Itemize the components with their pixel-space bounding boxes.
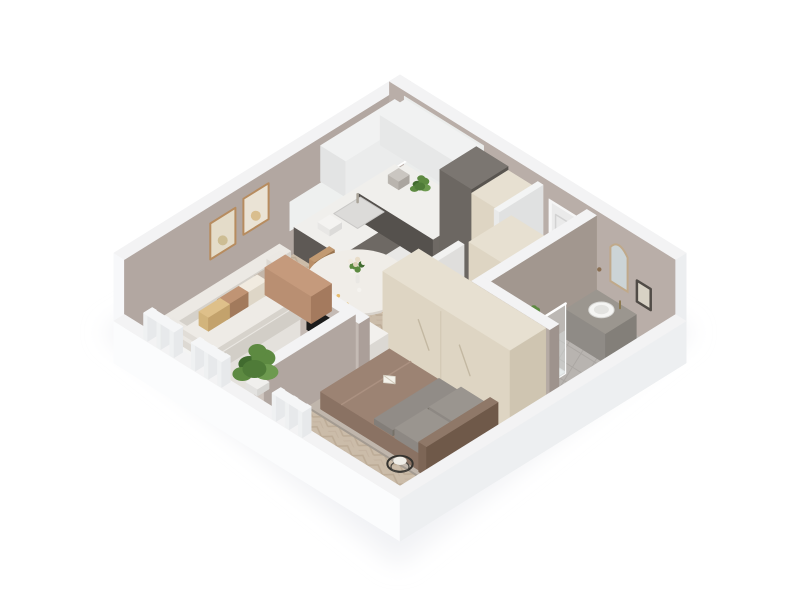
table-cup-1 <box>350 269 354 273</box>
bath-wall-hook-2 <box>597 267 601 271</box>
table-cup-2 <box>357 288 361 292</box>
open-book <box>384 375 396 384</box>
scene-layers <box>102 75 695 566</box>
art-frame-1-motif <box>251 211 261 221</box>
isometric-floor-plan <box>0 0 800 600</box>
floor-plan-stage <box>0 0 800 600</box>
art-frame-2-motif <box>218 235 228 245</box>
bath-basin-inner <box>594 305 609 314</box>
